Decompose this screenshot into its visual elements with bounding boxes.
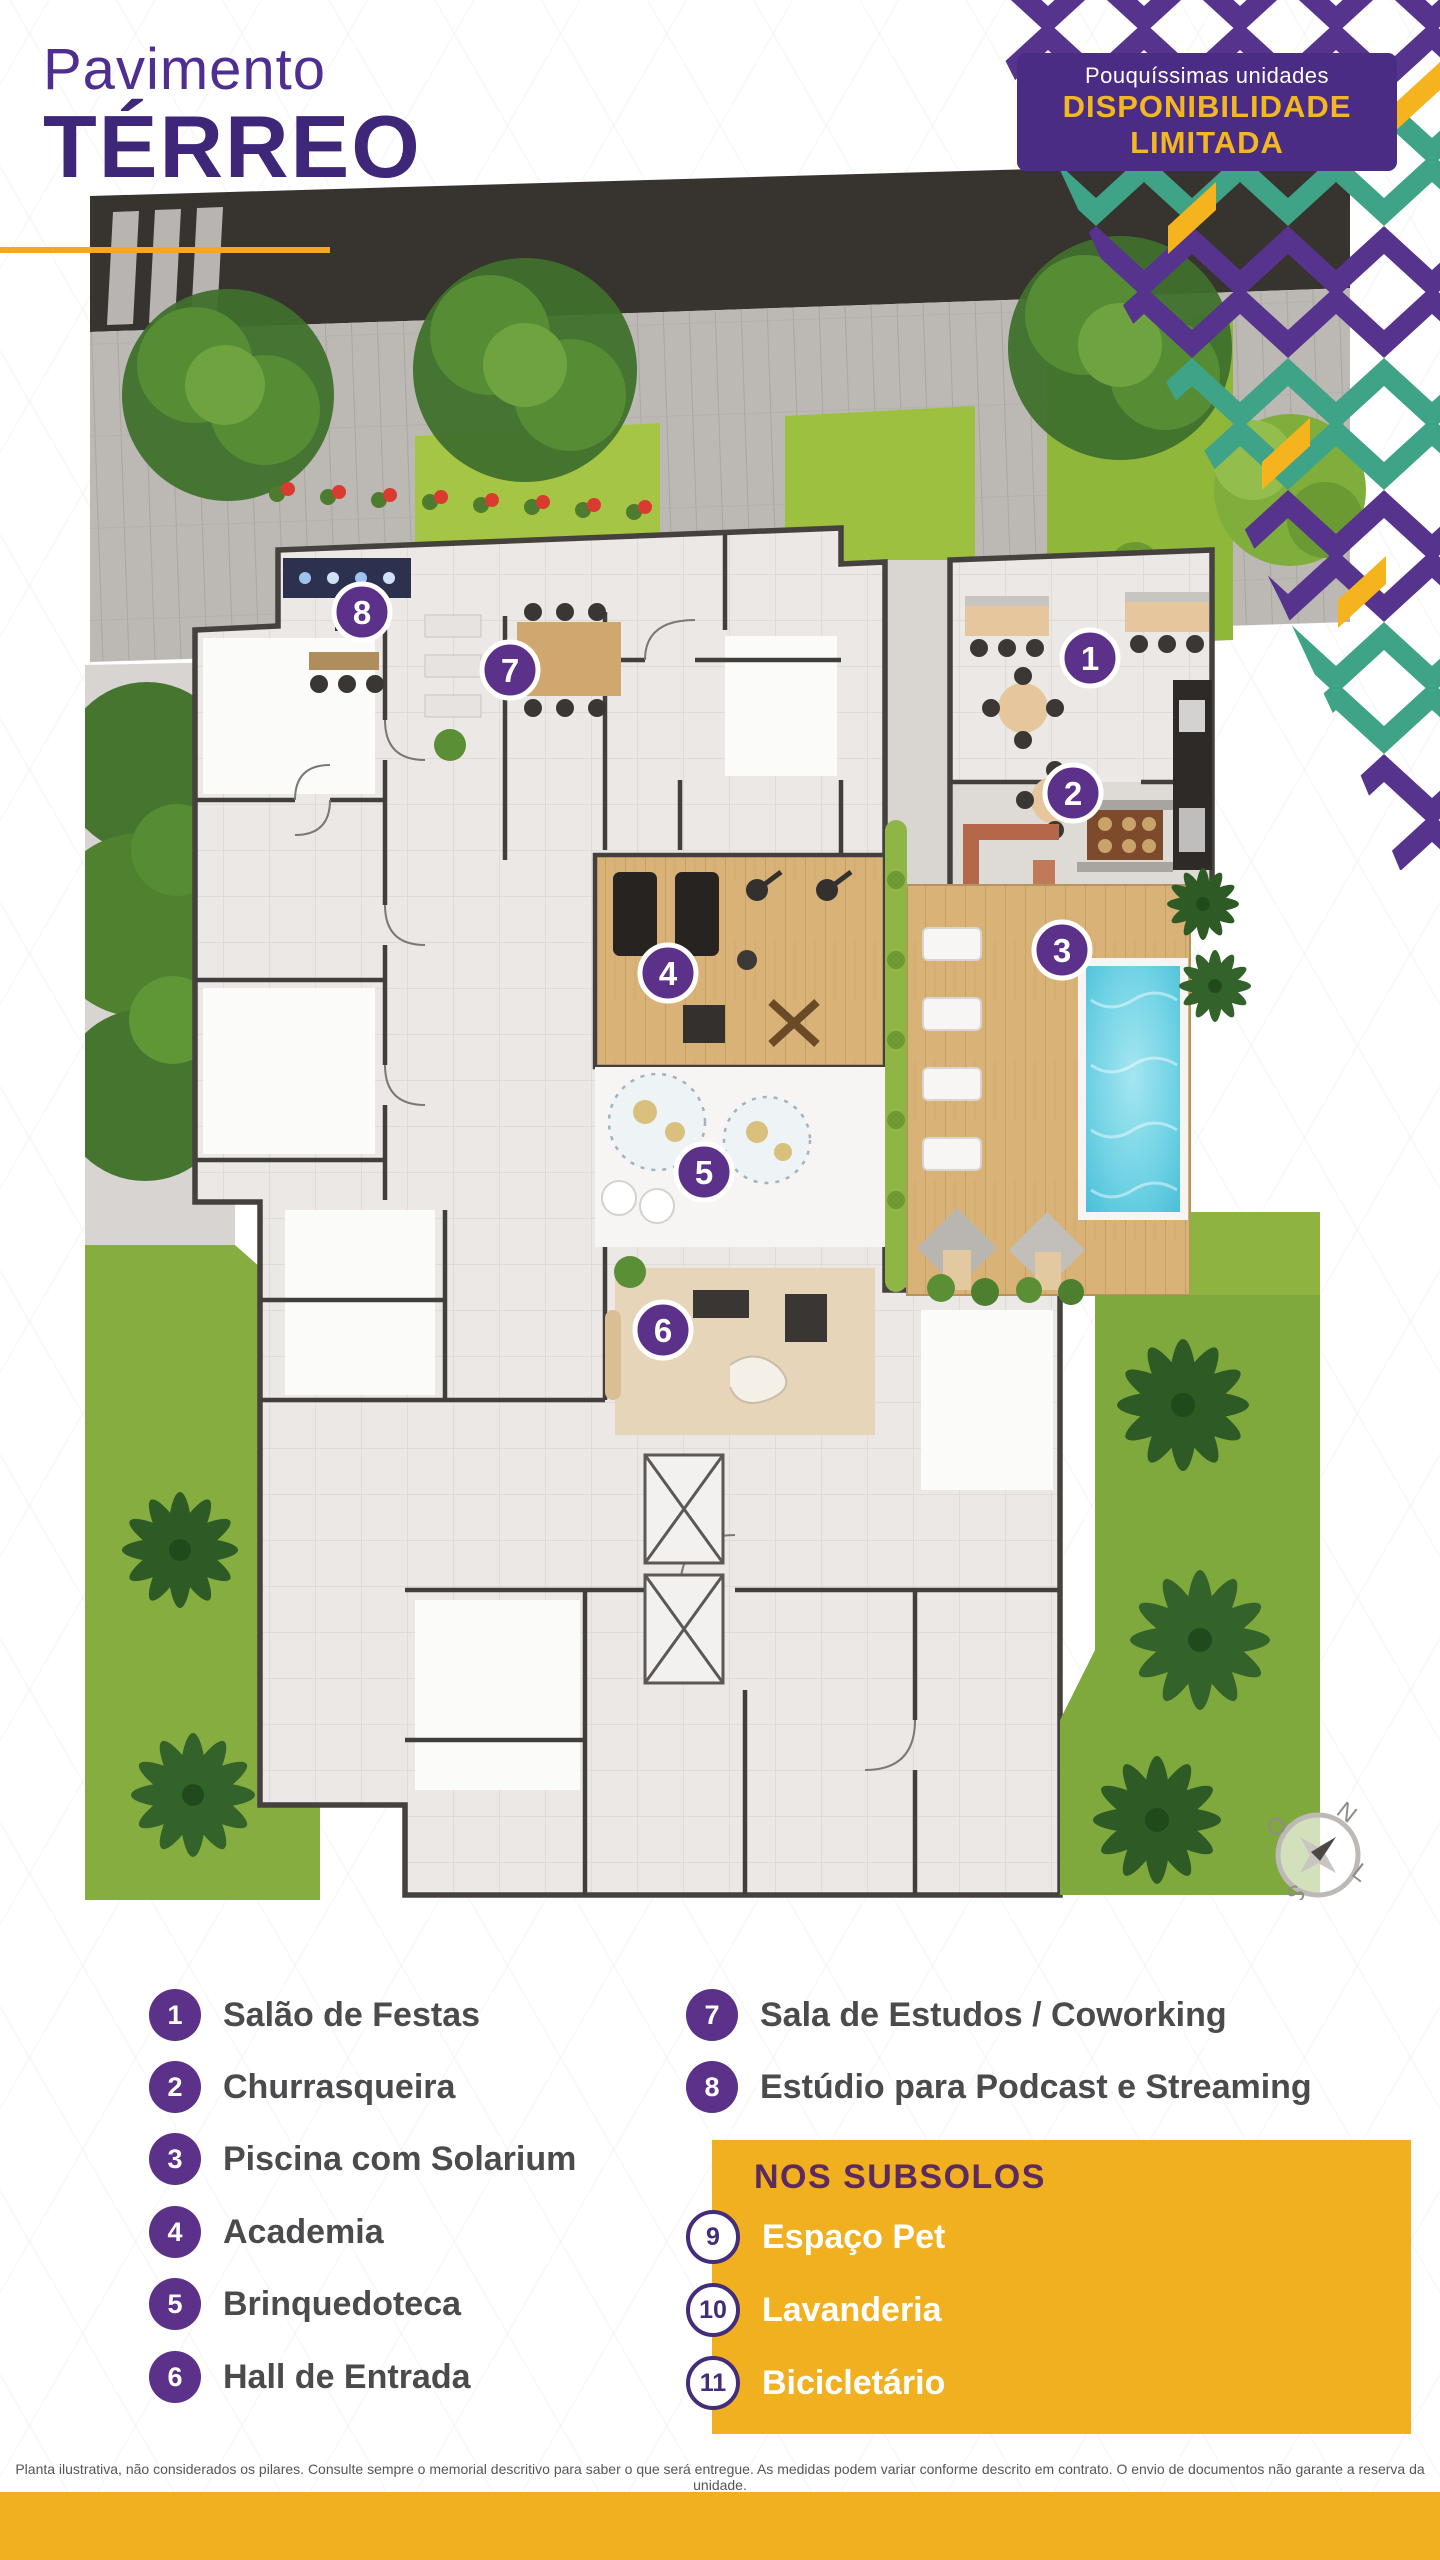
marker-6: 6: [635, 1302, 691, 1358]
availability-badge: Pouquíssimas unidades DISPONIBILIDADE LI…: [1017, 53, 1397, 171]
legend-number-badge: 8: [686, 2061, 738, 2113]
tree: [413, 258, 637, 482]
title-underline: [0, 247, 330, 253]
legend-item-salao-de-festas: 1 Salão de Festas: [149, 1989, 480, 2041]
kids-room-brinquedoteca: [595, 1067, 885, 1247]
page-title-line1: Pavimento: [43, 40, 422, 101]
legend-item-piscina: 3 Piscina com Solarium: [149, 2133, 576, 2185]
legend-number-badge: 3: [149, 2133, 201, 2185]
legend-number-badge: 11: [686, 2356, 740, 2410]
marker-8: 8: [334, 584, 390, 640]
legend-number-badge: 10: [686, 2283, 740, 2337]
legend-number-badge: 1: [149, 1989, 201, 2041]
legend-label: Espaço Pet: [762, 2218, 945, 2257]
marker-4: 4: [640, 945, 696, 1001]
legend-label: Brinquedoteca: [223, 2285, 461, 2324]
legend-label: Academia: [223, 2213, 384, 2252]
legend-number-badge: 9: [686, 2210, 740, 2264]
legend-item-hall-de-entrada: 6 Hall de Entrada: [149, 2351, 471, 2403]
badge-title-line1: DISPONIBILIDADE: [1063, 90, 1352, 125]
east-lawn: [1060, 1212, 1320, 1895]
footer-bar: [0, 2492, 1440, 2560]
legend-item-brinquedoteca: 5 Brinquedoteca: [149, 2278, 461, 2330]
legend-label: Lavanderia: [762, 2291, 942, 2330]
gym-academia: [595, 855, 885, 1067]
legend-label: Salão de Festas: [223, 1996, 480, 2035]
marker-3-number: 3: [1053, 932, 1071, 969]
legend-label: Piscina com Solarium: [223, 2140, 576, 2179]
legend-item-lavanderia: 10 Lavanderia: [686, 2283, 942, 2337]
legend-label: Hall de Entrada: [223, 2358, 471, 2397]
legend-number-badge: 4: [149, 2206, 201, 2258]
legend-label: Sala de Estudos / Coworking: [760, 1996, 1227, 2035]
marker-5-number: 5: [695, 1154, 713, 1191]
legend-item-espaco-pet: 9 Espaço Pet: [686, 2210, 945, 2264]
legend-number-badge: 6: [149, 2351, 201, 2403]
legend-item-estudio-podcast: 8 Estúdio para Podcast e Streaming: [686, 2061, 1312, 2113]
page-title-line2: TÉRREO: [43, 103, 422, 191]
legend-label: Estúdio para Podcast e Streaming: [760, 2068, 1312, 2107]
tree: [122, 289, 334, 501]
legal-disclaimer: Planta ilustrativa, não considerados os …: [0, 2461, 1440, 2493]
marker-7-number: 7: [501, 652, 519, 689]
legend-label: Bicicletário: [762, 2364, 945, 2403]
legend-label: Churrasqueira: [223, 2068, 455, 2107]
marker-5: 5: [676, 1144, 732, 1200]
badge-title-line2: LIMITADA: [1130, 126, 1284, 161]
legend-item-churrasqueira: 2 Churrasqueira: [149, 2061, 455, 2113]
badge-subtitle: Pouquíssimas unidades: [1085, 63, 1329, 89]
swimming-pool: [1086, 966, 1180, 1212]
legend-item-sala-de-estudos: 7 Sala de Estudos / Coworking: [686, 1989, 1227, 2041]
marker-6-number: 6: [654, 1312, 672, 1349]
legend-item-academia: 4 Academia: [149, 2206, 384, 2258]
page-title: Pavimento TÉRREO: [43, 40, 422, 191]
legend-number-badge: 5: [149, 2278, 201, 2330]
marker-4-number: 4: [659, 955, 678, 992]
marker-7: 7: [482, 642, 538, 698]
marker-8-number: 8: [353, 594, 371, 631]
subsolos-title: NOS SUBSOLOS: [754, 2158, 1046, 2197]
legend-number-badge: 2: [149, 2061, 201, 2113]
legend-number-badge: 7: [686, 1989, 738, 2041]
marker-3: 3: [1034, 922, 1090, 978]
legend-item-bicicletario: 11 Bicicletário: [686, 2356, 945, 2410]
